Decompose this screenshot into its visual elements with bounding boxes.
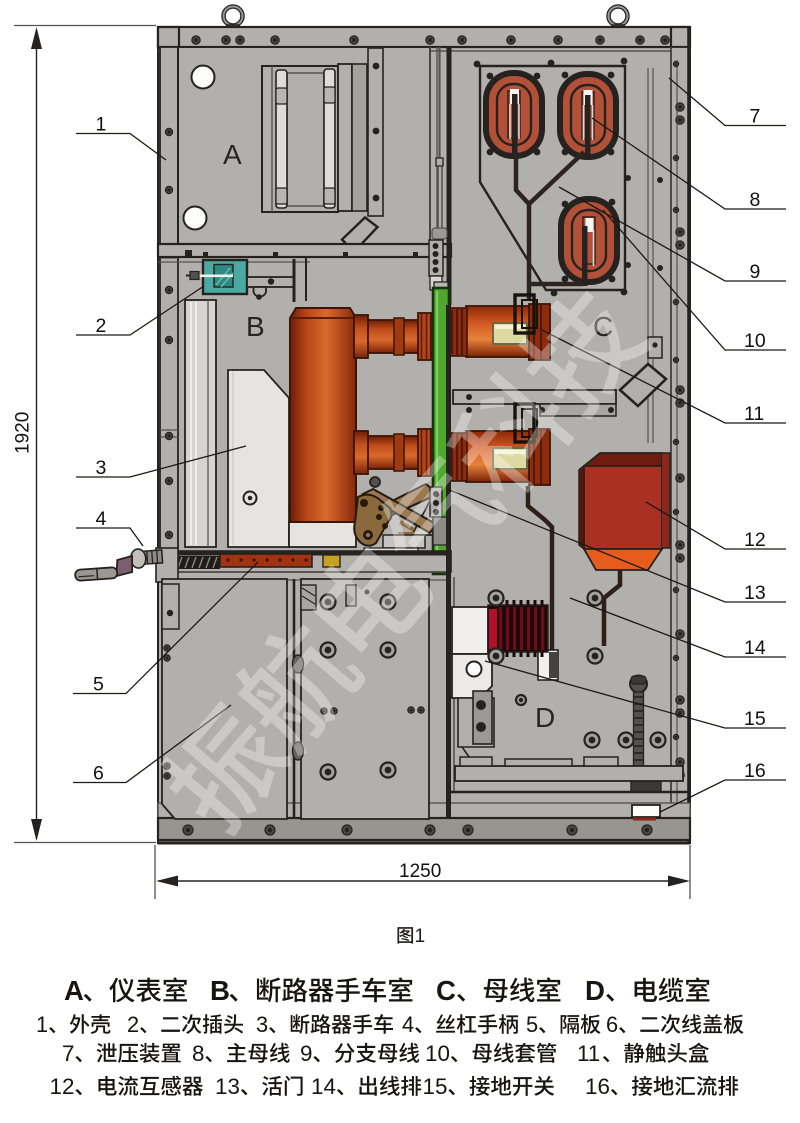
- svg-text:7: 7: [750, 106, 761, 128]
- svg-text:6: 6: [606, 1012, 618, 1037]
- svg-text:2: 2: [127, 1012, 139, 1037]
- svg-text:5: 5: [93, 674, 104, 696]
- svg-text:4: 4: [96, 508, 107, 530]
- svg-text:15: 15: [744, 708, 766, 730]
- svg-text:1: 1: [36, 1012, 48, 1037]
- svg-text:B: B: [210, 975, 230, 1006]
- svg-text:16: 16: [585, 1074, 610, 1099]
- svg-text:16: 16: [744, 760, 766, 782]
- svg-text:11: 11: [744, 403, 764, 425]
- svg-text:12: 12: [744, 529, 766, 551]
- svg-text:1920: 1920: [13, 412, 34, 454]
- svg-text:15: 15: [423, 1074, 448, 1099]
- svg-text:10: 10: [425, 1041, 450, 1066]
- svg-text:9: 9: [750, 261, 761, 283]
- svg-text:3: 3: [96, 457, 107, 479]
- svg-text:13: 13: [744, 582, 766, 604]
- svg-text:1: 1: [96, 114, 107, 136]
- svg-text:D: D: [585, 975, 605, 1006]
- svg-text:10: 10: [744, 330, 766, 352]
- svg-text:D: D: [535, 702, 555, 733]
- svg-text:5: 5: [526, 1012, 538, 1037]
- svg-text:1250: 1250: [399, 861, 441, 882]
- svg-text:C: C: [436, 975, 456, 1006]
- svg-text:7: 7: [62, 1041, 74, 1066]
- svg-text:11: 11: [577, 1041, 600, 1066]
- svg-text:B: B: [246, 311, 265, 342]
- svg-text:3: 3: [256, 1012, 268, 1037]
- svg-text:8: 8: [750, 189, 761, 211]
- svg-text:9: 9: [300, 1041, 312, 1066]
- svg-text:13: 13: [215, 1074, 240, 1099]
- svg-text:1: 1: [415, 926, 426, 947]
- svg-text:14: 14: [744, 637, 766, 659]
- svg-text:4: 4: [402, 1012, 414, 1037]
- svg-text:12: 12: [50, 1074, 75, 1099]
- svg-text:2: 2: [96, 315, 107, 337]
- svg-text:A: A: [223, 139, 242, 170]
- svg-text:14: 14: [311, 1074, 336, 1099]
- svg-text:6: 6: [93, 763, 104, 785]
- svg-text:8: 8: [192, 1041, 204, 1066]
- svg-text:A: A: [64, 975, 84, 1006]
